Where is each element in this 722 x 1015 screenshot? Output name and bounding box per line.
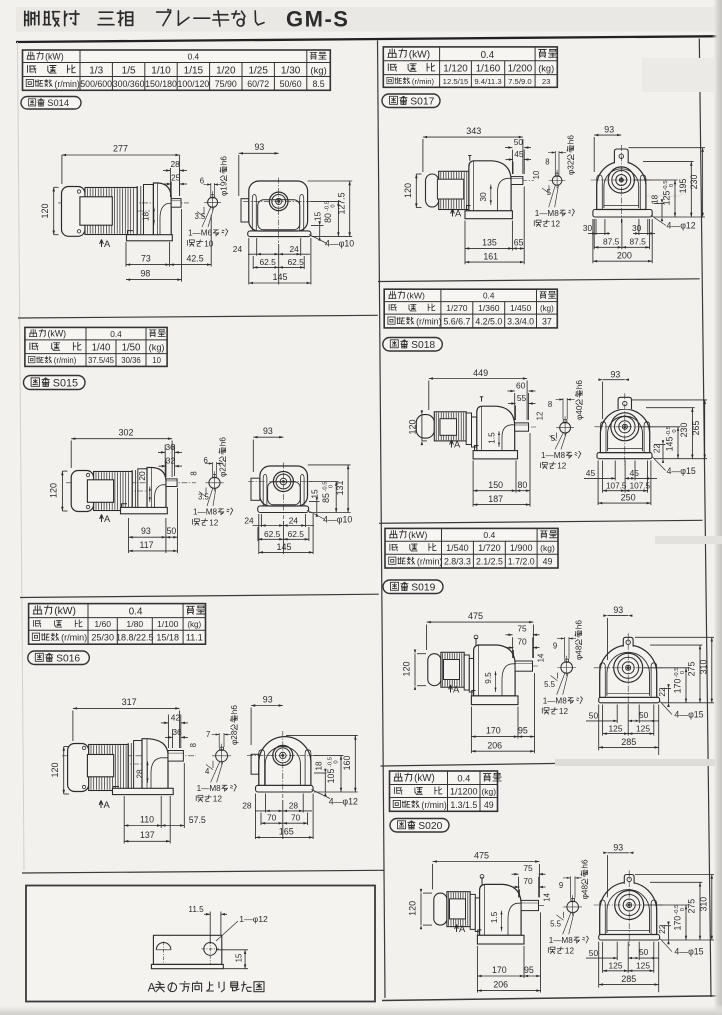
svg-text:18: 18 [650, 195, 660, 205]
svg-text:S018: S018 [411, 340, 435, 351]
svg-text:h6: h6 [575, 380, 584, 390]
svg-text:1/30: 1/30 [281, 65, 301, 76]
svg-text:200: 200 [617, 251, 632, 261]
svg-text:2.8/3.3: 2.8/3.3 [444, 557, 471, 567]
svg-text:75/90: 75/90 [215, 79, 237, 89]
svg-text:(kg): (kg) [310, 65, 326, 76]
svg-text:18: 18 [140, 212, 150, 222]
svg-text:1/20: 1/20 [216, 65, 236, 76]
svg-text:h6: h6 [230, 705, 239, 715]
svg-text:165: 165 [279, 827, 294, 837]
svg-text:30: 30 [632, 223, 642, 233]
svg-text:7: 7 [206, 730, 210, 739]
svg-text:0.4: 0.4 [483, 530, 495, 540]
svg-text:12.5/15: 12.5/15 [443, 77, 469, 86]
svg-text:110: 110 [140, 815, 154, 825]
svg-text:42.5: 42.5 [187, 254, 204, 264]
svg-text:100/120: 100/120 [177, 79, 209, 89]
svg-text:22: 22 [657, 924, 667, 934]
svg-text:55: 55 [517, 393, 527, 403]
svg-text:4—φ15: 4—φ15 [674, 710, 703, 720]
svg-text:1/25: 1/25 [248, 65, 268, 76]
svg-text:28: 28 [134, 769, 144, 779]
svg-text:0: 0 [680, 671, 686, 674]
svg-text:1/540: 1/540 [446, 543, 469, 553]
svg-text:62.5: 62.5 [288, 257, 305, 267]
svg-text:1/40: 1/40 [92, 342, 111, 353]
svg-text:A: A [453, 684, 460, 695]
svg-text:9: 9 [553, 642, 557, 651]
svg-text:45: 45 [514, 149, 524, 159]
svg-text:GM-S: GM-S [286, 7, 349, 32]
svg-text:(kg): (kg) [187, 620, 201, 629]
svg-text:120: 120 [403, 183, 413, 198]
svg-text:(r/min): (r/min) [417, 557, 442, 567]
svg-text:277: 277 [113, 144, 128, 154]
svg-text:160: 160 [342, 756, 352, 771]
svg-text:6: 6 [200, 177, 204, 186]
svg-text:45: 45 [630, 468, 640, 478]
svg-text:161: 161 [483, 251, 498, 261]
svg-text:1—φ12: 1—φ12 [239, 914, 268, 924]
svg-text:(kg): (kg) [481, 786, 496, 796]
svg-text:70: 70 [267, 813, 277, 823]
svg-text:60/72: 60/72 [247, 79, 269, 89]
svg-text:170: 170 [672, 679, 682, 694]
svg-text:0.4: 0.4 [481, 50, 495, 61]
svg-text:93: 93 [263, 694, 273, 704]
svg-text:105: 105 [326, 769, 336, 784]
svg-text:37.5/45: 37.5/45 [88, 356, 115, 365]
svg-text:343: 343 [466, 126, 481, 136]
svg-text:187: 187 [488, 494, 503, 504]
svg-text:117: 117 [140, 540, 154, 550]
svg-text:12: 12 [551, 220, 561, 229]
svg-text:φ19: φ19 [220, 181, 229, 196]
svg-text:9: 9 [559, 881, 563, 890]
svg-text:1/120: 1/120 [443, 63, 468, 74]
svg-text:10: 10 [204, 239, 214, 248]
svg-text:1/3: 1/3 [89, 65, 103, 76]
svg-text:250: 250 [621, 493, 636, 503]
svg-text:4—φ12: 4—φ12 [329, 797, 358, 807]
svg-text:135: 135 [482, 237, 497, 247]
svg-text:49: 49 [543, 557, 553, 567]
svg-text:22: 22 [657, 687, 667, 697]
svg-text:28: 28 [242, 800, 252, 810]
svg-text:4: 4 [205, 767, 210, 776]
svg-text:5: 5 [547, 188, 552, 197]
svg-text:50: 50 [167, 526, 177, 536]
svg-text:75: 75 [517, 624, 527, 634]
svg-text:125: 125 [636, 961, 650, 971]
svg-text:73: 73 [141, 254, 151, 264]
svg-text:206: 206 [493, 980, 508, 990]
svg-text:1—M6: 1—M6 [188, 229, 213, 238]
svg-text:0: 0 [328, 485, 334, 488]
svg-text:1/80: 1/80 [126, 619, 143, 629]
svg-text:S015: S015 [53, 378, 78, 390]
svg-text:15: 15 [313, 212, 323, 222]
svg-text:36: 36 [172, 727, 182, 737]
svg-text:14: 14 [543, 892, 552, 901]
svg-text:28: 28 [171, 159, 181, 169]
svg-text:0: 0 [680, 908, 686, 911]
svg-text:500/600: 500/600 [80, 79, 112, 89]
svg-text:φ48: φ48 [575, 645, 584, 660]
svg-text:137: 137 [140, 830, 155, 840]
svg-text:1—M8: 1—M8 [549, 936, 574, 945]
svg-text:φ32: φ32 [567, 160, 576, 175]
svg-text:1/10: 1/10 [151, 65, 171, 76]
svg-text:-0.5: -0.5 [674, 668, 680, 678]
svg-text:0.4: 0.4 [188, 52, 200, 62]
svg-text:93: 93 [255, 142, 265, 152]
svg-text:18: 18 [313, 761, 323, 771]
svg-text:230: 230 [679, 423, 689, 438]
svg-text:8.5: 8.5 [312, 79, 324, 89]
svg-text:(kg): (kg) [538, 63, 554, 73]
svg-text:24: 24 [233, 244, 243, 254]
svg-text:20: 20 [137, 471, 147, 481]
svg-text:15: 15 [235, 953, 244, 962]
svg-text:(r/min): (r/min) [421, 800, 446, 810]
svg-text:2.1/2.5: 2.1/2.5 [476, 557, 503, 567]
svg-text:87.5: 87.5 [603, 237, 620, 247]
svg-text:70: 70 [291, 813, 301, 823]
svg-text:5.5: 5.5 [544, 680, 556, 689]
svg-text:(r/min): (r/min) [54, 79, 79, 89]
svg-text:93: 93 [141, 526, 151, 536]
svg-text:1/360: 1/360 [478, 303, 500, 313]
svg-text:0: 0 [333, 760, 339, 763]
svg-text:285: 285 [621, 737, 636, 747]
svg-text:(kW): (kW) [45, 51, 64, 61]
svg-text:-0.5: -0.5 [674, 905, 680, 915]
svg-text:A: A [104, 513, 111, 524]
svg-text:0.4: 0.4 [457, 774, 470, 784]
svg-text:h6: h6 [575, 620, 584, 630]
svg-text:15: 15 [309, 489, 319, 499]
svg-text:50: 50 [639, 710, 649, 720]
svg-text:3.5: 3.5 [198, 493, 210, 502]
svg-text:37: 37 [542, 316, 552, 326]
svg-text:25: 25 [171, 173, 181, 183]
svg-text:-0.5: -0.5 [323, 482, 329, 492]
svg-text:107.5: 107.5 [606, 482, 627, 491]
svg-text:(kW): (kW) [408, 530, 427, 540]
svg-text:A: A [104, 238, 111, 249]
svg-text:S019: S019 [411, 583, 435, 594]
svg-text:S020: S020 [418, 821, 442, 832]
svg-text:95: 95 [518, 726, 528, 736]
svg-text:0.4: 0.4 [483, 292, 495, 301]
svg-text:(kg): (kg) [540, 543, 555, 553]
svg-text:1.3/1.5: 1.3/1.5 [450, 800, 477, 810]
svg-text:12: 12 [536, 412, 545, 421]
svg-text:1/100: 1/100 [157, 619, 179, 629]
svg-text:h6: h6 [567, 135, 576, 145]
svg-text:62.5: 62.5 [260, 257, 277, 267]
svg-text:3.3/4.0: 3.3/4.0 [507, 316, 534, 326]
svg-text:8: 8 [190, 471, 199, 475]
svg-text:S016: S016 [56, 654, 80, 665]
svg-text:12: 12 [559, 707, 569, 716]
svg-text:42: 42 [171, 712, 181, 722]
svg-text:28: 28 [289, 800, 299, 810]
svg-text:5: 5 [551, 434, 556, 443]
svg-text:93: 93 [263, 426, 273, 436]
svg-text:70: 70 [523, 876, 533, 886]
svg-text:300/360: 300/360 [113, 79, 145, 89]
svg-text:62.5: 62.5 [264, 529, 281, 539]
svg-text:120: 120 [50, 762, 60, 777]
svg-text:80: 80 [323, 213, 333, 223]
svg-text:15/18: 15/18 [156, 633, 179, 643]
svg-text:4—φ15: 4—φ15 [674, 947, 703, 957]
svg-text:23: 23 [542, 77, 551, 86]
svg-text:9.4/11.3: 9.4/11.3 [474, 77, 501, 86]
svg-text:(kg): (kg) [540, 304, 554, 313]
svg-text:1/160: 1/160 [476, 63, 501, 74]
svg-text:8: 8 [548, 400, 552, 409]
svg-text:1.7/2.0: 1.7/2.0 [508, 557, 535, 567]
svg-text:87.5: 87.5 [630, 237, 647, 247]
svg-text:93: 93 [613, 605, 623, 615]
svg-text:φ48: φ48 [581, 885, 590, 900]
svg-text:(r/min): (r/min) [61, 633, 87, 643]
svg-text:1/270: 1/270 [446, 303, 468, 313]
svg-text:36: 36 [166, 442, 176, 452]
svg-text:70: 70 [517, 636, 527, 646]
svg-text:170: 170 [486, 726, 501, 736]
svg-text:1/60: 1/60 [94, 619, 111, 629]
svg-text:65: 65 [514, 238, 524, 248]
svg-text:-0.5: -0.5 [328, 757, 334, 767]
svg-text:230: 230 [689, 175, 699, 190]
svg-text:A: A [454, 439, 461, 450]
svg-text:125: 125 [636, 723, 650, 733]
svg-text:0.4: 0.4 [110, 329, 122, 339]
svg-text:(kW): (kW) [409, 49, 431, 60]
svg-text:(r/min): (r/min) [412, 77, 435, 86]
svg-text:11.5: 11.5 [188, 905, 204, 914]
svg-text:275: 275 [687, 899, 697, 914]
svg-text:475: 475 [468, 611, 483, 621]
svg-text:93: 93 [611, 369, 621, 379]
svg-text:93: 93 [613, 842, 623, 852]
svg-text:0.4: 0.4 [129, 607, 143, 618]
svg-text:(kW): (kW) [48, 329, 67, 339]
svg-text:150: 150 [488, 480, 503, 490]
svg-text:12: 12 [213, 795, 223, 804]
svg-text:14: 14 [537, 653, 546, 662]
svg-text:h6: h6 [219, 437, 228, 447]
svg-text:4—φ10: 4—φ10 [325, 238, 354, 248]
svg-text:1/900: 1/900 [510, 543, 533, 553]
svg-text:98: 98 [141, 269, 151, 279]
svg-text:-0.5: -0.5 [663, 181, 669, 191]
svg-text:9.5: 9.5 [484, 672, 493, 684]
svg-text:1/450: 1/450 [510, 303, 532, 313]
svg-text:11.1: 11.1 [186, 633, 203, 643]
svg-text:145: 145 [273, 272, 288, 282]
svg-text:0: 0 [672, 429, 678, 432]
svg-text:275: 275 [687, 662, 697, 677]
svg-text:107.5: 107.5 [630, 482, 651, 491]
svg-text:24: 24 [289, 515, 299, 525]
svg-text:(r/min): (r/min) [54, 356, 77, 365]
svg-text:24: 24 [290, 244, 300, 254]
svg-text:12: 12 [209, 518, 219, 527]
svg-text:50: 50 [514, 137, 524, 147]
svg-text:25/30: 25/30 [91, 633, 114, 643]
svg-text:30: 30 [478, 192, 488, 202]
svg-text:10: 10 [152, 356, 161, 365]
svg-text:(r/min): (r/min) [416, 316, 441, 326]
svg-text:h6: h6 [220, 156, 229, 166]
svg-text:S014: S014 [47, 98, 69, 108]
svg-text:449: 449 [473, 368, 488, 378]
svg-text:206: 206 [487, 740, 502, 750]
svg-text:50: 50 [589, 948, 599, 958]
svg-text:(kW): (kW) [414, 773, 435, 784]
svg-text:5.5: 5.5 [550, 919, 562, 928]
svg-text:A: A [148, 980, 156, 994]
svg-text:62.5: 62.5 [288, 529, 305, 539]
svg-text:4—φ10: 4—φ10 [323, 514, 352, 524]
svg-text:A: A [104, 799, 111, 810]
svg-text:0: 0 [331, 204, 337, 207]
svg-text:1—M8: 1—M8 [543, 697, 568, 706]
svg-text:75: 75 [523, 863, 533, 873]
svg-text:80: 80 [518, 480, 528, 490]
svg-text:30/36: 30/36 [121, 356, 141, 365]
svg-text:1/720: 1/720 [478, 543, 501, 553]
svg-text:12: 12 [557, 462, 567, 471]
svg-text:57.5: 57.5 [189, 815, 206, 825]
svg-text:5.6/6.7: 5.6/6.7 [443, 316, 470, 326]
svg-text:4.2/5.0: 4.2/5.0 [475, 316, 502, 326]
svg-text:1.5: 1.5 [490, 911, 499, 923]
svg-text:170: 170 [672, 916, 682, 931]
svg-text:10: 10 [532, 170, 541, 179]
svg-text:285: 285 [621, 974, 636, 984]
svg-text:(kg): (kg) [149, 342, 165, 352]
svg-text:120: 120 [49, 483, 59, 498]
svg-text:50/60: 50/60 [280, 79, 302, 89]
svg-text:95: 95 [524, 965, 534, 975]
svg-text:49: 49 [484, 800, 494, 810]
svg-text:195: 195 [678, 179, 688, 194]
svg-text:1—M8: 1—M8 [535, 209, 560, 218]
svg-text:302: 302 [119, 427, 134, 437]
svg-text:145: 145 [277, 542, 292, 552]
svg-text:1—M8: 1—M8 [541, 451, 566, 460]
svg-text:50: 50 [639, 947, 649, 957]
svg-text:1.5: 1.5 [488, 432, 497, 444]
svg-text:170: 170 [492, 965, 507, 975]
svg-text:-0.5: -0.5 [325, 201, 331, 211]
svg-text:85: 85 [321, 493, 331, 503]
svg-text:8: 8 [189, 743, 198, 747]
svg-text:120: 120 [40, 203, 50, 218]
svg-text:93: 93 [604, 125, 614, 135]
svg-text:-0.5: -0.5 [666, 426, 672, 436]
svg-text:S017: S017 [410, 97, 434, 108]
svg-text:50: 50 [589, 711, 599, 721]
svg-text:150/180: 150/180 [145, 79, 177, 89]
svg-text:125: 125 [609, 961, 623, 971]
svg-text:φ22: φ22 [219, 462, 228, 477]
svg-text:A: A [459, 923, 466, 934]
svg-text:h6: h6 [581, 859, 590, 869]
svg-text:7.5/9.0: 7.5/9.0 [508, 77, 532, 86]
svg-text:4—φ15: 4—φ15 [667, 466, 696, 476]
svg-text:32: 32 [166, 456, 176, 466]
svg-text:4—φ12: 4—φ12 [667, 221, 696, 231]
svg-text:A: A [455, 208, 462, 219]
svg-text:φ28: φ28 [230, 730, 239, 745]
svg-text:145: 145 [664, 437, 674, 452]
svg-text:3.5: 3.5 [195, 212, 207, 221]
svg-text:1/15: 1/15 [184, 65, 204, 76]
svg-text:0: 0 [669, 184, 675, 187]
svg-text:45: 45 [586, 468, 596, 478]
svg-text:1—M8: 1—M8 [193, 508, 218, 517]
svg-text:(kW): (kW) [54, 606, 76, 617]
svg-text:6: 6 [204, 456, 208, 465]
svg-text:475: 475 [474, 850, 489, 860]
svg-text:120: 120 [408, 419, 418, 434]
svg-text:12: 12 [565, 947, 575, 956]
svg-text:1/1200: 1/1200 [450, 786, 478, 796]
svg-text:1—M8: 1—M8 [197, 784, 222, 793]
svg-text:1/200: 1/200 [508, 63, 533, 74]
svg-text:120: 120 [408, 901, 418, 916]
svg-text:120: 120 [402, 661, 412, 676]
svg-text:8: 8 [545, 158, 549, 167]
svg-text:30: 30 [583, 223, 593, 233]
svg-text:317: 317 [122, 697, 137, 707]
svg-text:60: 60 [516, 380, 526, 390]
svg-text:1/50: 1/50 [122, 342, 141, 353]
svg-text:125: 125 [609, 723, 623, 733]
svg-text:24: 24 [244, 515, 254, 525]
svg-text:(kW): (kW) [407, 290, 425, 300]
svg-text:22: 22 [651, 444, 661, 454]
svg-text:1/5: 1/5 [122, 65, 136, 76]
svg-text:φ40: φ40 [575, 405, 584, 420]
svg-text:18.8/22.5: 18.8/22.5 [116, 633, 154, 643]
